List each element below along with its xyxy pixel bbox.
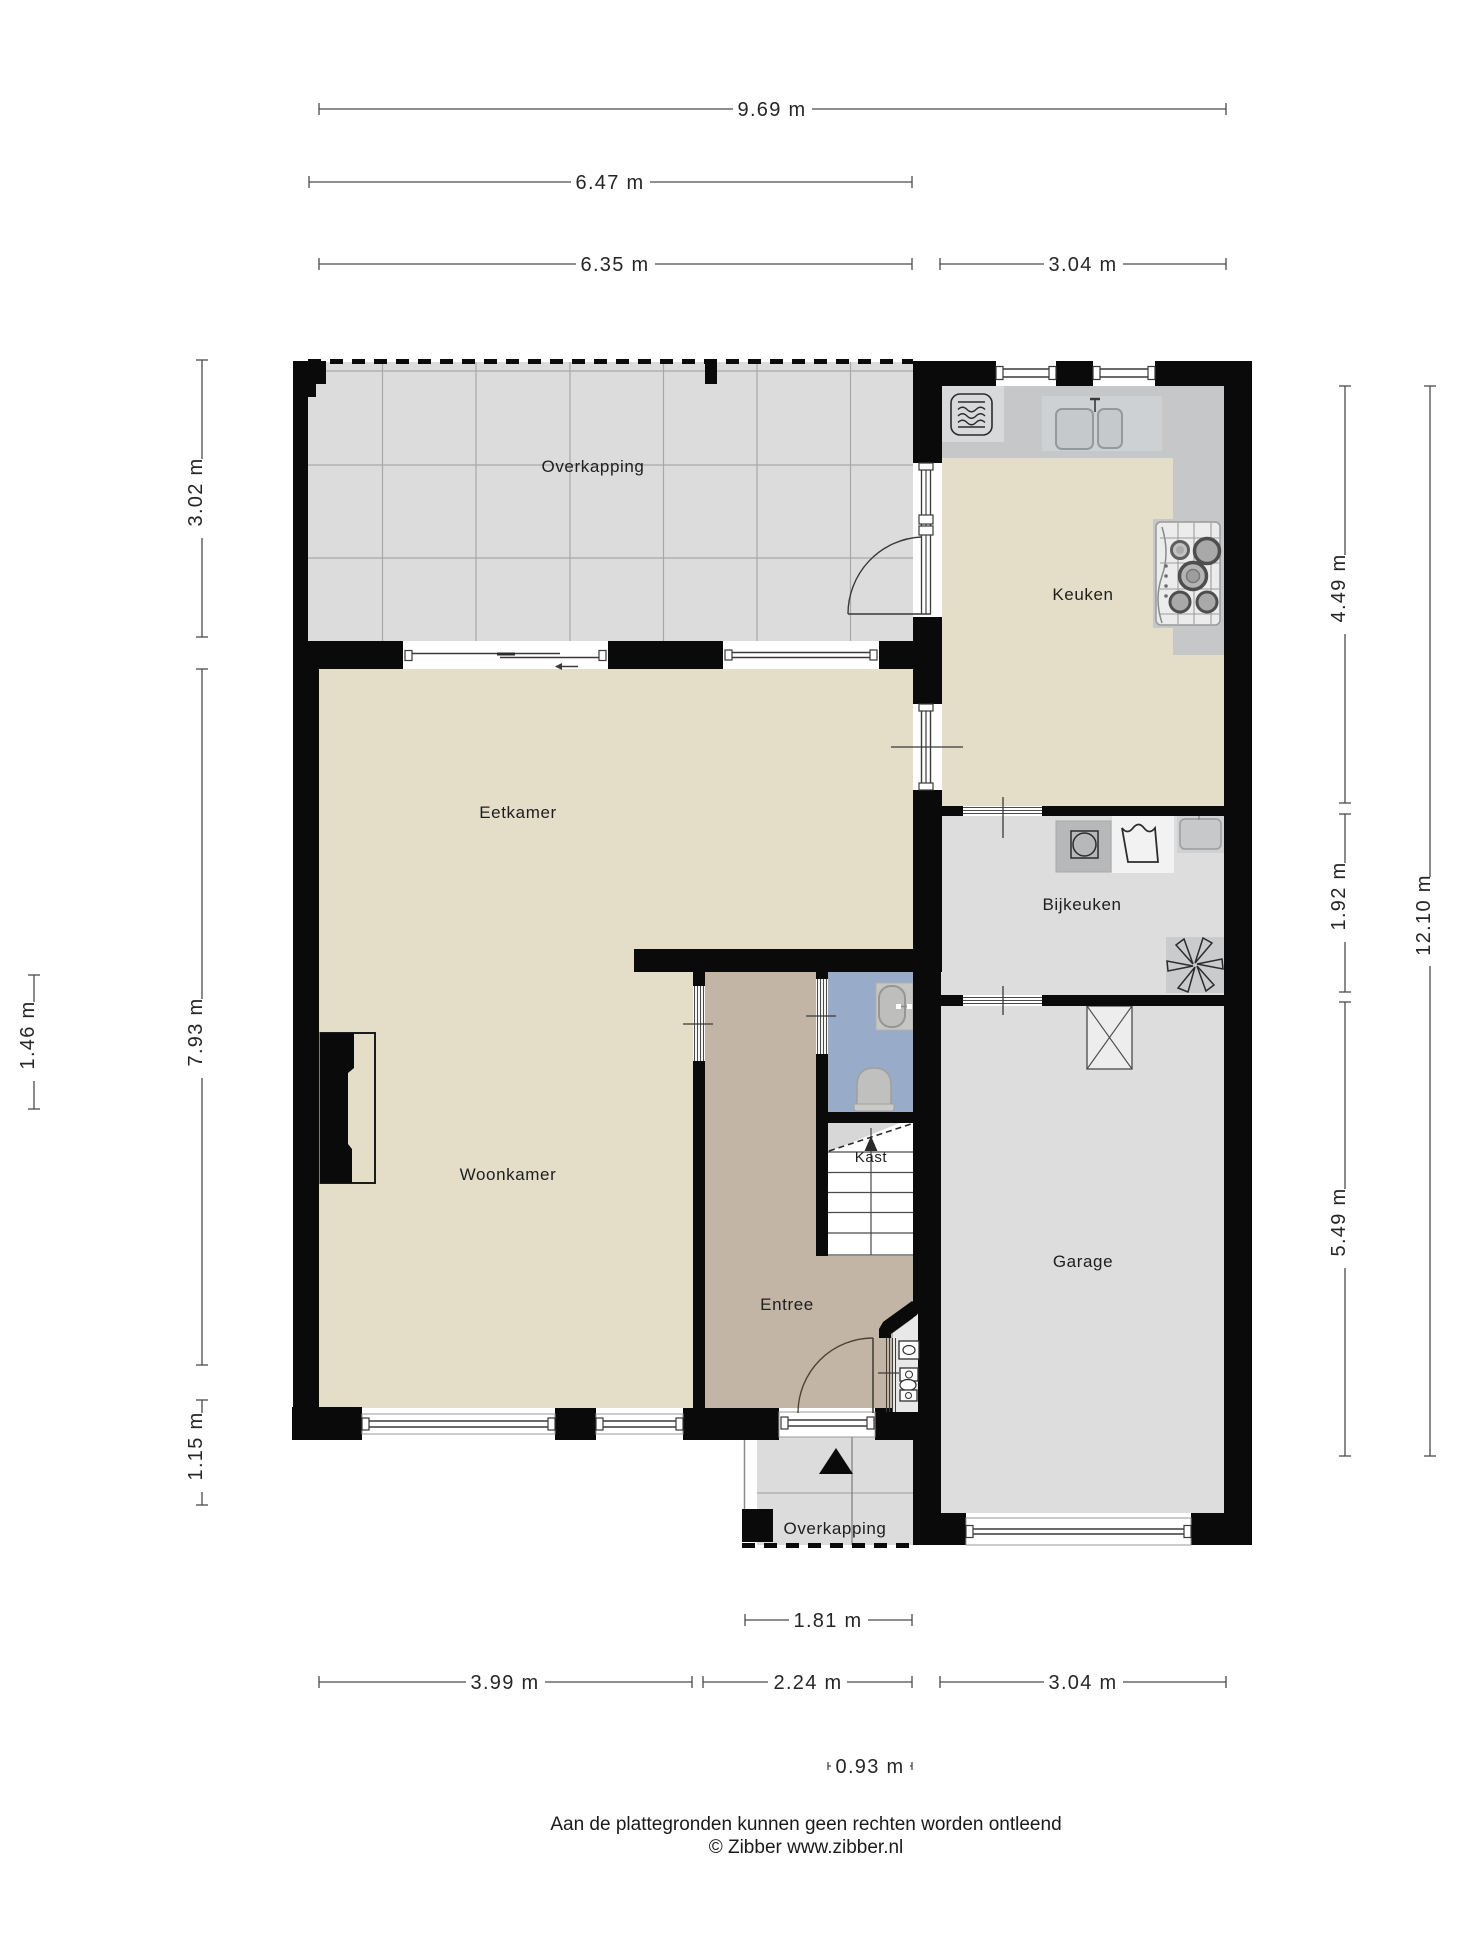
svg-text:Overkapping: Overkapping xyxy=(784,1519,887,1538)
svg-text:6.47 m: 6.47 m xyxy=(576,172,645,194)
svg-text:7.93 m: 7.93 m xyxy=(185,998,207,1067)
svg-text:4.49 m: 4.49 m xyxy=(1328,554,1350,623)
svg-text:© Zibber www.zibber.nl: © Zibber www.zibber.nl xyxy=(709,1837,904,1858)
svg-text:Eetkamer: Eetkamer xyxy=(479,803,557,822)
svg-text:1.46 m: 1.46 m xyxy=(17,1001,39,1070)
svg-text:Woonkamer: Woonkamer xyxy=(460,1165,557,1184)
svg-text:0.93 m: 0.93 m xyxy=(836,1756,905,1778)
svg-text:Keuken: Keuken xyxy=(1052,585,1113,604)
svg-text:1.15 m: 1.15 m xyxy=(185,1412,207,1481)
svg-text:3.04 m: 3.04 m xyxy=(1049,1672,1118,1694)
svg-text:3.99 m: 3.99 m xyxy=(471,1672,540,1694)
svg-text:9.69 m: 9.69 m xyxy=(738,99,807,121)
svg-text:3.02 m: 3.02 m xyxy=(185,458,207,527)
svg-text:1.92 m: 1.92 m xyxy=(1328,862,1350,931)
svg-text:Entree: Entree xyxy=(760,1295,814,1314)
svg-text:12.10 m: 12.10 m xyxy=(1413,874,1435,955)
svg-text:Garage: Garage xyxy=(1053,1252,1113,1271)
svg-text:6.35 m: 6.35 m xyxy=(581,254,650,276)
svg-text:3.04 m: 3.04 m xyxy=(1049,254,1118,276)
svg-text:Bijkeuken: Bijkeuken xyxy=(1042,895,1121,914)
svg-text:Kast: Kast xyxy=(855,1149,888,1166)
svg-text:Aan de plattegronden kunnen ge: Aan de plattegronden kunnen geen rechten… xyxy=(550,1814,1061,1835)
svg-text:5.49 m: 5.49 m xyxy=(1328,1188,1350,1257)
svg-text:Overkapping: Overkapping xyxy=(542,457,645,476)
svg-text:1.81 m: 1.81 m xyxy=(794,1610,863,1632)
svg-text:2.24 m: 2.24 m xyxy=(774,1672,843,1694)
